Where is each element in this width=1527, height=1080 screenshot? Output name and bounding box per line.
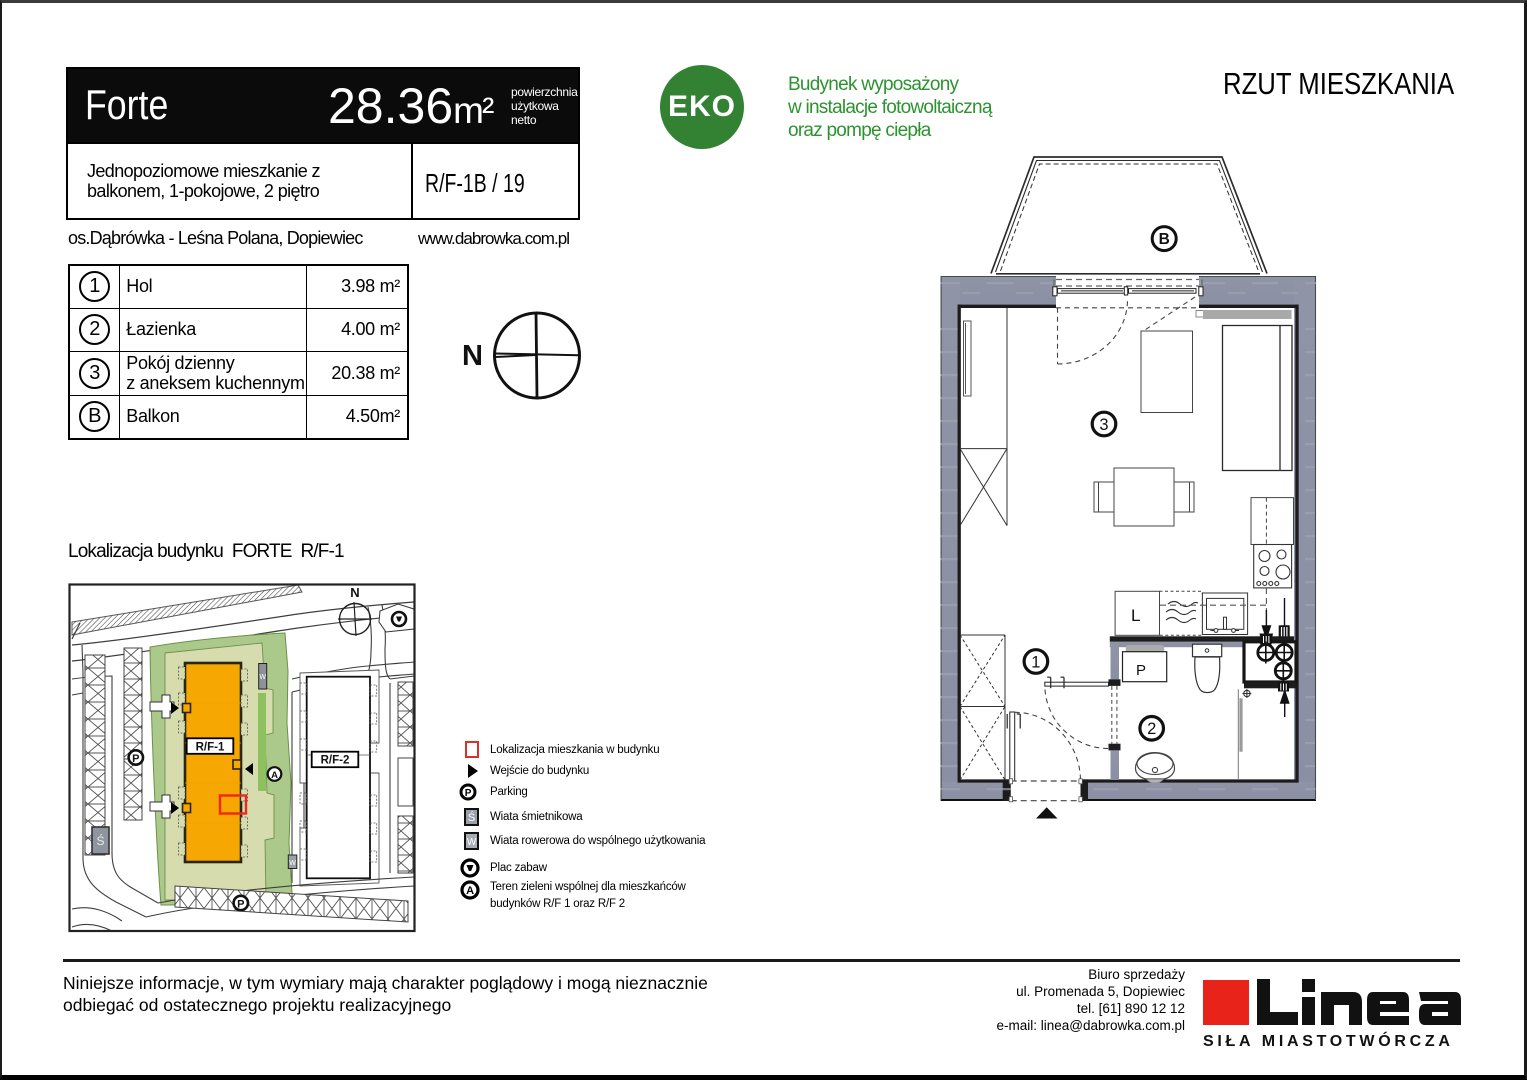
svg-text:P: P	[1136, 662, 1146, 679]
svg-text:P: P	[132, 753, 139, 765]
svg-text:L: L	[1131, 606, 1140, 625]
svg-text:N: N	[350, 585, 359, 600]
svg-text:P: P	[237, 898, 244, 910]
svg-text:3: 3	[1099, 416, 1108, 434]
svg-text:W: W	[259, 674, 266, 681]
svg-text:A: A	[271, 770, 278, 781]
svg-text:1: 1	[1031, 653, 1040, 671]
svg-text:Ś: Ś	[96, 833, 104, 848]
svg-text:P: P	[465, 788, 472, 799]
svg-text:R/F-1: R/F-1	[196, 741, 225, 753]
svg-text:2: 2	[1147, 720, 1156, 738]
svg-text:R/F-2: R/F-2	[321, 755, 350, 767]
svg-text:A: A	[466, 885, 474, 897]
svg-text:W: W	[289, 860, 296, 867]
svg-text:SIŁA MIASTOTWÓRCZA: SIŁA MIASTOTWÓRCZA	[1203, 1031, 1454, 1050]
svg-text:B: B	[1159, 231, 1170, 248]
svg-text:N: N	[462, 340, 483, 372]
